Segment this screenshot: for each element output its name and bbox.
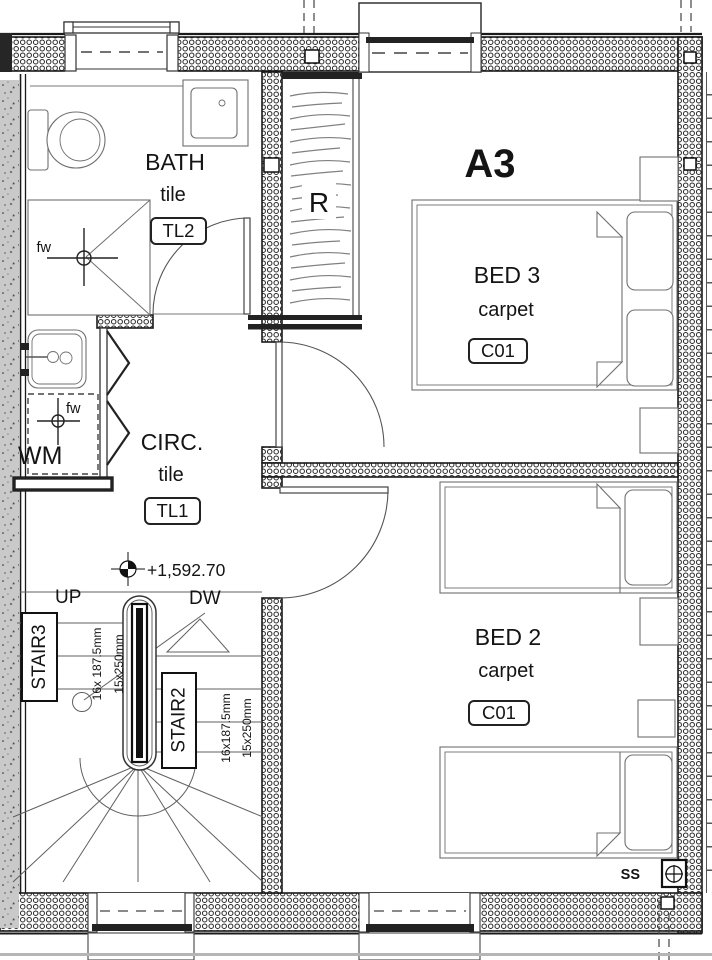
wall-stub-2 xyxy=(262,477,282,488)
bed2-door-leaf xyxy=(280,487,388,493)
floor-plan-drawing: R xyxy=(0,0,712,960)
stair3-going-dim: 16x 187.5mm xyxy=(90,628,104,701)
bedside-table xyxy=(640,408,678,453)
up-label: UP xyxy=(55,587,81,608)
top-window-left xyxy=(64,22,179,73)
stair2-tag: STAIR2 xyxy=(162,673,196,768)
robe-bottom-band-b xyxy=(248,324,362,330)
ss-label: SS xyxy=(621,867,641,883)
laundry-side-wall xyxy=(100,328,107,478)
stair3-tread-dim: 15x250mm xyxy=(112,634,126,693)
level-benchmark: +1,592.70 xyxy=(111,552,226,586)
bed2-single-bed-bottom xyxy=(440,747,677,858)
circ-labels: CIRC. tile TL1 xyxy=(141,429,204,524)
down-label: DW xyxy=(189,588,221,609)
laundry-bifold-doors xyxy=(107,331,129,465)
pillow xyxy=(627,212,673,290)
laundry-tub xyxy=(20,330,86,388)
bed3-finish: carpet xyxy=(478,299,534,321)
tap-icon xyxy=(20,369,29,376)
bath-south-wall xyxy=(97,315,153,328)
right-edge-ticks xyxy=(707,72,710,893)
bath-fixtures xyxy=(28,80,248,315)
service-stack: SS xyxy=(621,860,686,887)
bath-fw-label: fw xyxy=(37,240,52,256)
stair2-tread-dim: 15x250mm xyxy=(240,698,254,757)
bed2-name: BED 2 xyxy=(475,624,541,650)
bed3-name: BED 3 xyxy=(474,262,540,288)
bath-code: TL2 xyxy=(163,220,195,241)
bed3-code: C01 xyxy=(481,340,515,361)
stair2-label: STAIR2 xyxy=(169,687,190,752)
right-wall xyxy=(678,37,702,933)
laundry-rear-wall xyxy=(14,478,112,490)
newel-post xyxy=(73,693,92,712)
circ-code: TL1 xyxy=(157,500,189,521)
stair3-label: STAIR3 xyxy=(29,624,50,689)
stair2-going-dim: 16x187.5mm xyxy=(219,693,233,762)
bedside-table xyxy=(640,157,678,201)
bath-vanity xyxy=(183,80,248,146)
bath-door-leaf xyxy=(244,218,250,314)
robe-top-shelf xyxy=(282,72,362,79)
floor-plan-sheet: R xyxy=(0,0,712,960)
party-wall xyxy=(0,74,26,928)
shower xyxy=(28,200,150,315)
robe-bottom-band-a xyxy=(248,315,362,320)
level-value: +1,592.70 xyxy=(147,560,226,580)
pillow xyxy=(627,310,673,386)
bed2-labels: BED 2 carpet C01 xyxy=(469,624,541,725)
circ-name: CIRC. xyxy=(141,429,204,455)
stair3-tag: STAIR3 xyxy=(22,613,57,701)
bath-finish: tile xyxy=(160,184,186,206)
party-wall-stipple xyxy=(0,80,19,928)
unit-label: A3 xyxy=(464,142,515,186)
bedside-table xyxy=(638,700,675,737)
top-left-wall-block xyxy=(0,33,12,72)
page-edge-line xyxy=(0,953,712,956)
toilet xyxy=(28,110,105,170)
robe-closet: R xyxy=(290,92,351,303)
bed3-double-bed xyxy=(412,200,677,390)
robe-label: R xyxy=(309,187,329,218)
bath-robe-wall xyxy=(262,72,282,342)
bed2-finish: carpet xyxy=(478,660,534,682)
bed3-door xyxy=(276,342,384,447)
pillow xyxy=(625,490,672,585)
bath-name: BATH xyxy=(145,149,205,175)
stair-winders xyxy=(13,765,263,882)
pillow xyxy=(625,755,672,850)
staircase: STAIR3 STAIR2 16x 187.5mm 15x250mm 16x18… xyxy=(13,587,263,882)
bed2-single-bed-top xyxy=(440,482,677,593)
bed3-door-leaf xyxy=(276,342,282,447)
bed2-stair-wall xyxy=(262,598,282,893)
laundry-fw-label: fw xyxy=(66,401,81,417)
bed2-code: C01 xyxy=(482,702,516,723)
down-arrow-icon xyxy=(167,619,229,652)
wm-label: WM xyxy=(18,442,62,470)
bedside-table xyxy=(640,598,678,645)
bottom-window-left xyxy=(88,893,194,960)
top-window-bay xyxy=(359,3,481,73)
bed2-door xyxy=(280,487,388,598)
robe-side-panel xyxy=(353,79,359,315)
bed3-bed2-wall xyxy=(262,463,678,477)
circ-finish: tile xyxy=(158,464,184,486)
stair-void-balustrade xyxy=(123,596,156,770)
bottom-window-right xyxy=(359,893,480,960)
tap-icon xyxy=(20,343,29,350)
wall-stub-1 xyxy=(262,447,282,463)
